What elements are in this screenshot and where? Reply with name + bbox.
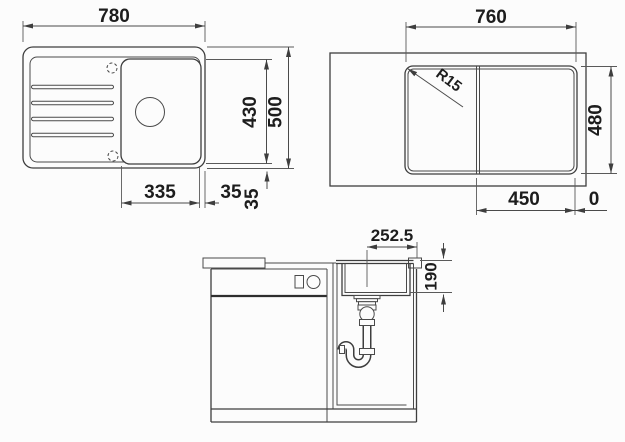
sink-bowl — [121, 59, 201, 164]
trap-inlet-cap — [340, 346, 345, 354]
dim-label-480: 480 — [586, 104, 607, 136]
worktop-section-left — [203, 258, 265, 268]
pipe-nut-lower — [360, 349, 375, 355]
dimension-760: 760 — [406, 7, 576, 62]
dim-label-0: 0 — [589, 189, 600, 210]
worktop-outline — [330, 53, 586, 186]
dim-label-190: 190 — [422, 262, 441, 290]
drawing-svg: 780 430 500 35 335 35 — [0, 0, 625, 442]
dim-label-35-vertical: 35 — [242, 188, 263, 210]
cutout-inner-line — [408, 69, 574, 171]
front-view: 252.5 190 — [203, 226, 452, 422]
dimension-252-5: 252.5 — [367, 226, 417, 258]
drainboard-groove — [32, 133, 114, 137]
base-cabinet — [211, 264, 417, 423]
dim-label-500: 500 — [266, 96, 287, 128]
knob-icon — [307, 276, 320, 289]
plan-view: 780 430 500 35 335 35 — [23, 6, 294, 210]
dimension-430: 430 — [206, 60, 272, 164]
trap-pipe — [342, 320, 367, 364]
drainboard-groove — [32, 101, 114, 105]
bowl-outer-wall — [342, 264, 410, 296]
dimension-450: 450 — [477, 178, 576, 215]
drainboard-groove — [32, 85, 114, 89]
sink-rim-line — [336, 261, 414, 264]
dimension-35-vertical: 35 — [242, 172, 267, 210]
handle-icon — [295, 276, 304, 289]
tap-hole-icon-bottom — [108, 151, 118, 161]
bowl-inner-wall — [345, 264, 407, 293]
cutout-outline — [405, 66, 577, 174]
dim-label-760: 760 — [475, 7, 507, 28]
dimension-r15: R15 — [408, 65, 465, 107]
drain-trap — [340, 296, 381, 364]
tap-hole-icon-top — [107, 63, 117, 73]
dim-label-450: 450 — [508, 189, 540, 210]
dimension-780: 780 — [23, 6, 205, 42]
dim-label-335: 335 — [144, 182, 176, 203]
dim-label-780: 780 — [98, 6, 130, 27]
bowl-divider-line — [477, 66, 480, 174]
dim-label-r15: R15 — [433, 65, 465, 95]
dim-label-252-5: 252.5 — [371, 226, 414, 245]
dimension-0: 0 — [575, 189, 607, 211]
drainboard-groove — [32, 117, 114, 121]
dimension-35-horizontal: 35 — [205, 182, 242, 203]
sink-section — [336, 250, 414, 296]
cutout-view: R15 760 480 450 0 — [330, 7, 617, 215]
dimension-335: 335 — [122, 166, 206, 208]
pipe-nut-upper — [360, 320, 375, 326]
sink-technical-drawing: 780 430 500 35 335 35 — [0, 0, 625, 442]
dim-label-35-horizontal: 35 — [220, 182, 242, 203]
drainboard-grooves — [32, 85, 114, 137]
dim-label-430: 430 — [240, 96, 261, 128]
sink-cabinet-inner-box — [337, 264, 407, 406]
